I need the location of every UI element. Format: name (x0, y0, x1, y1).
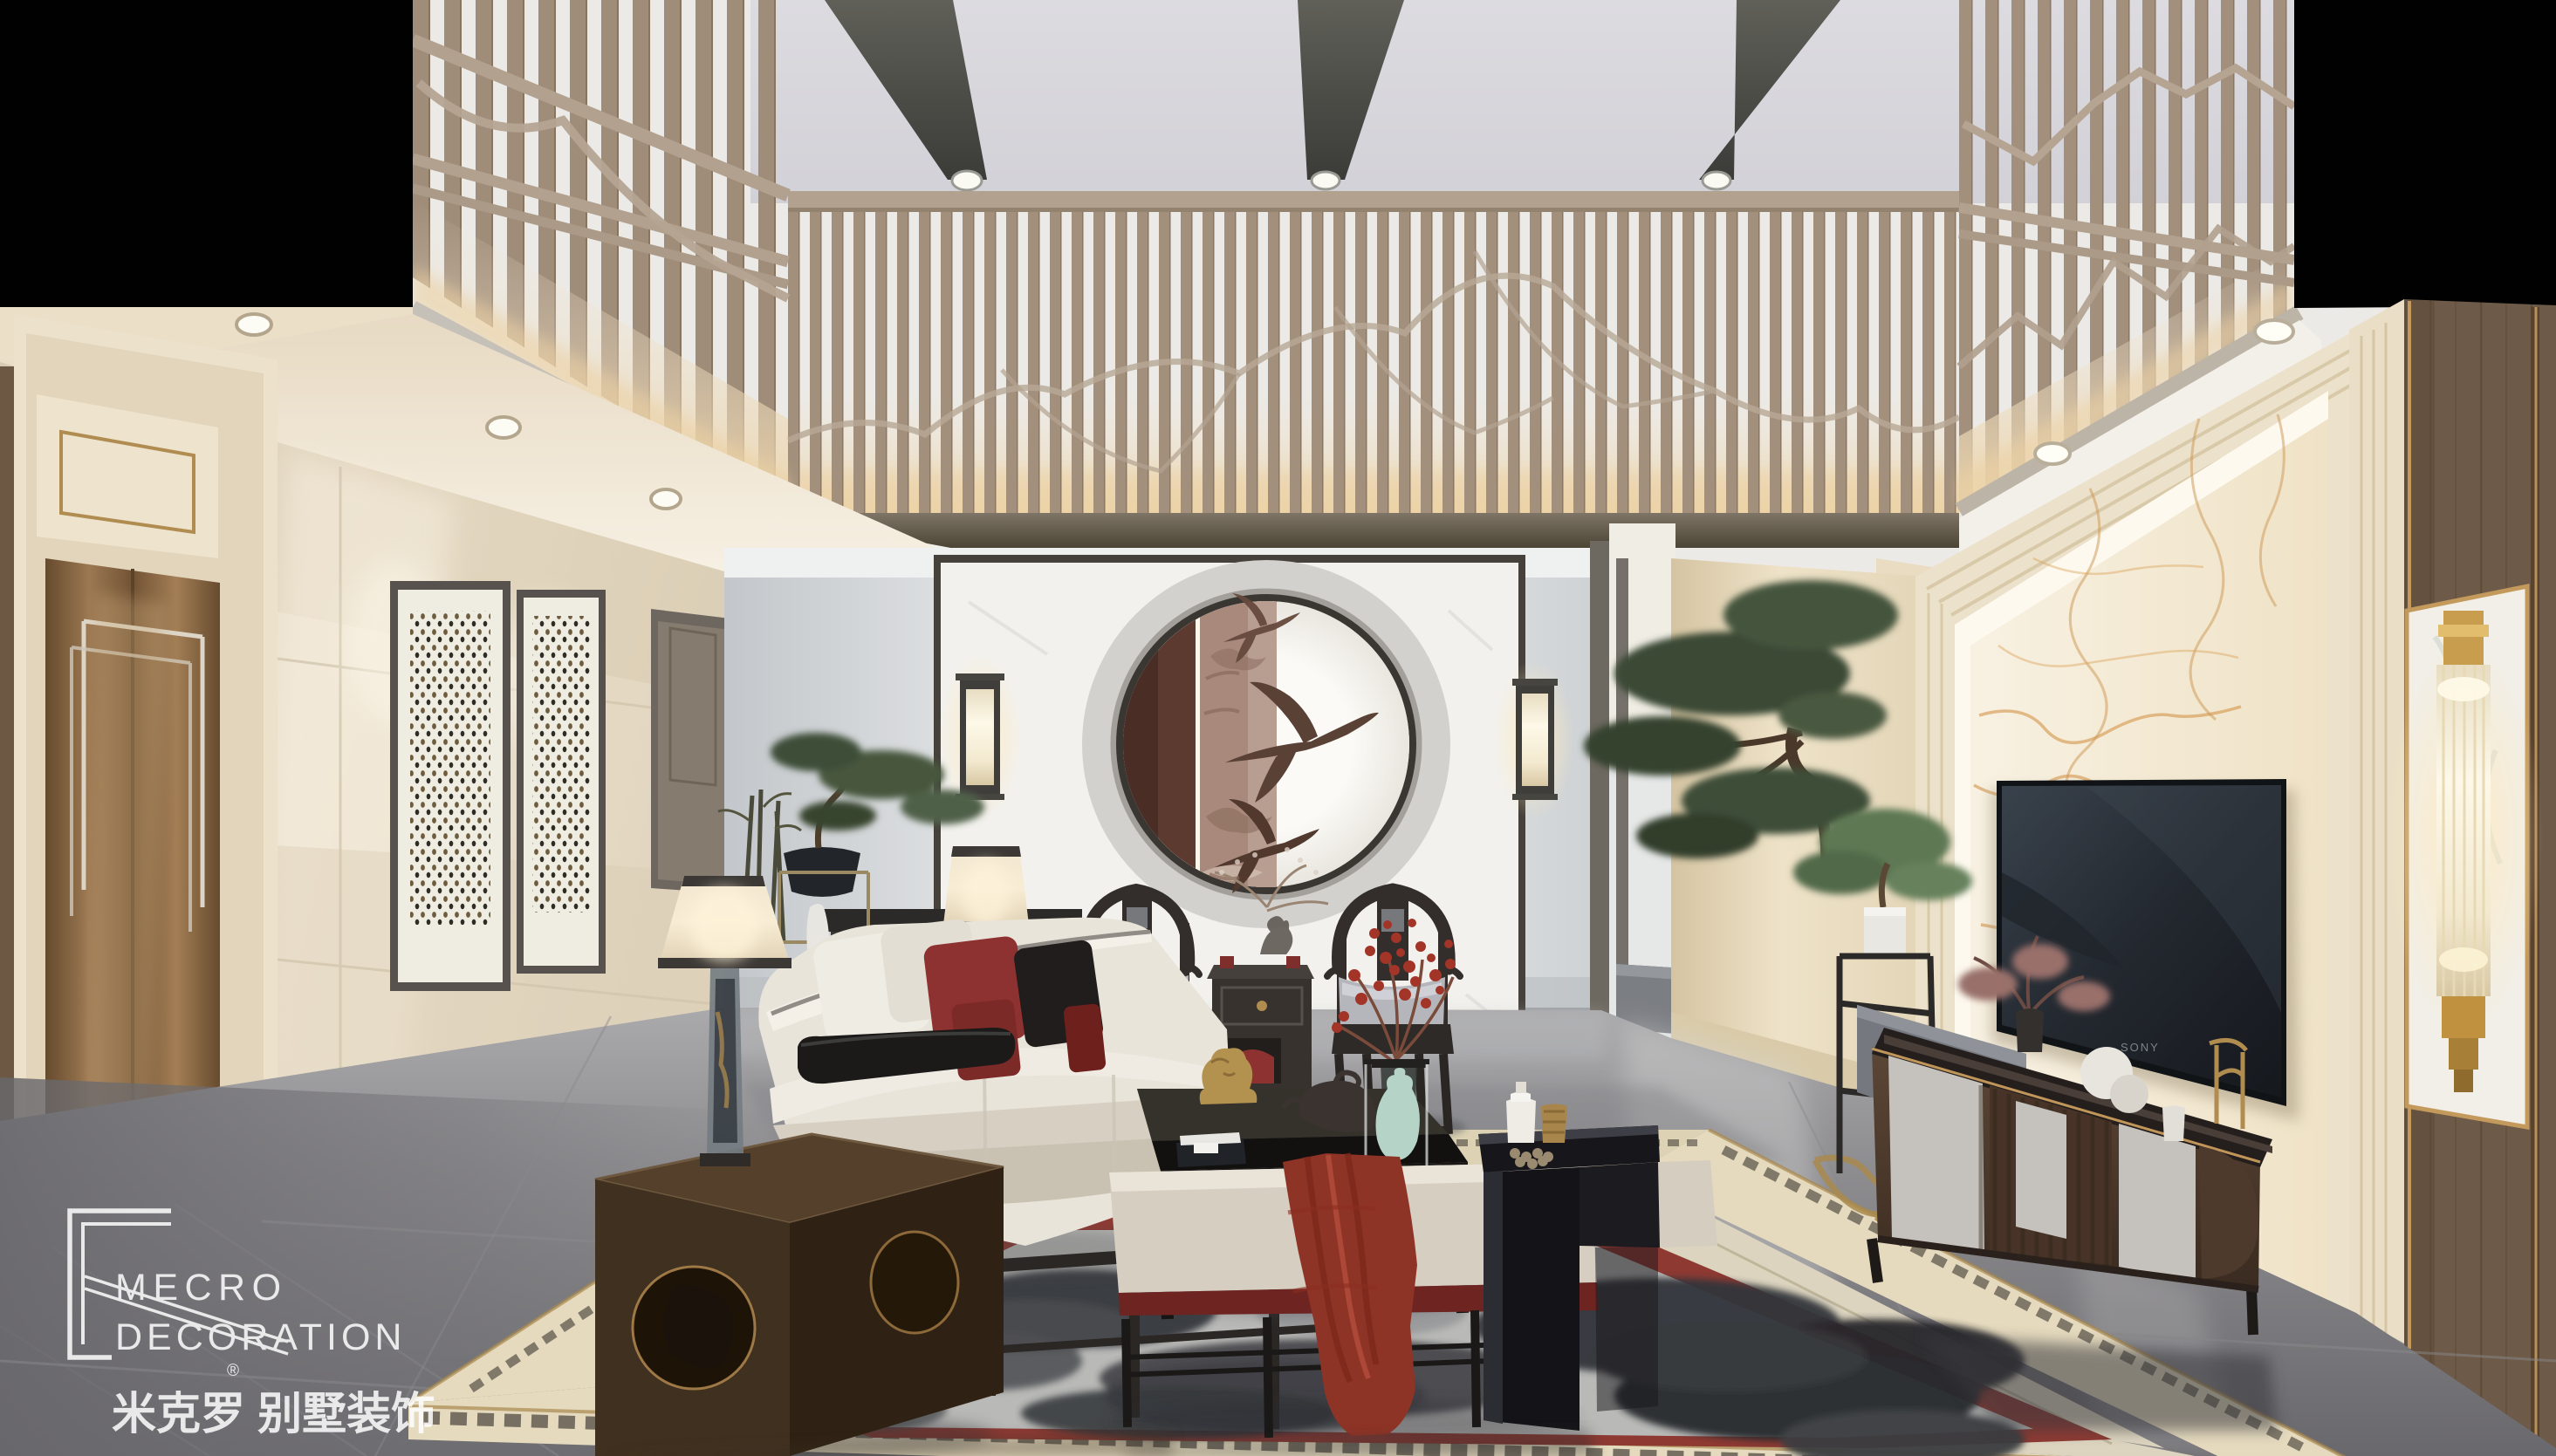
svg-text:米克罗 别墅装饰: 米克罗 别墅装饰 (112, 1389, 435, 1439)
svg-text:®: ® (227, 1362, 239, 1380)
svg-text:DECORATION: DECORATION (115, 1316, 407, 1358)
svg-text:SONY: SONY (2121, 1041, 2160, 1054)
svg-text:MECRO: MECRO (115, 1267, 288, 1309)
